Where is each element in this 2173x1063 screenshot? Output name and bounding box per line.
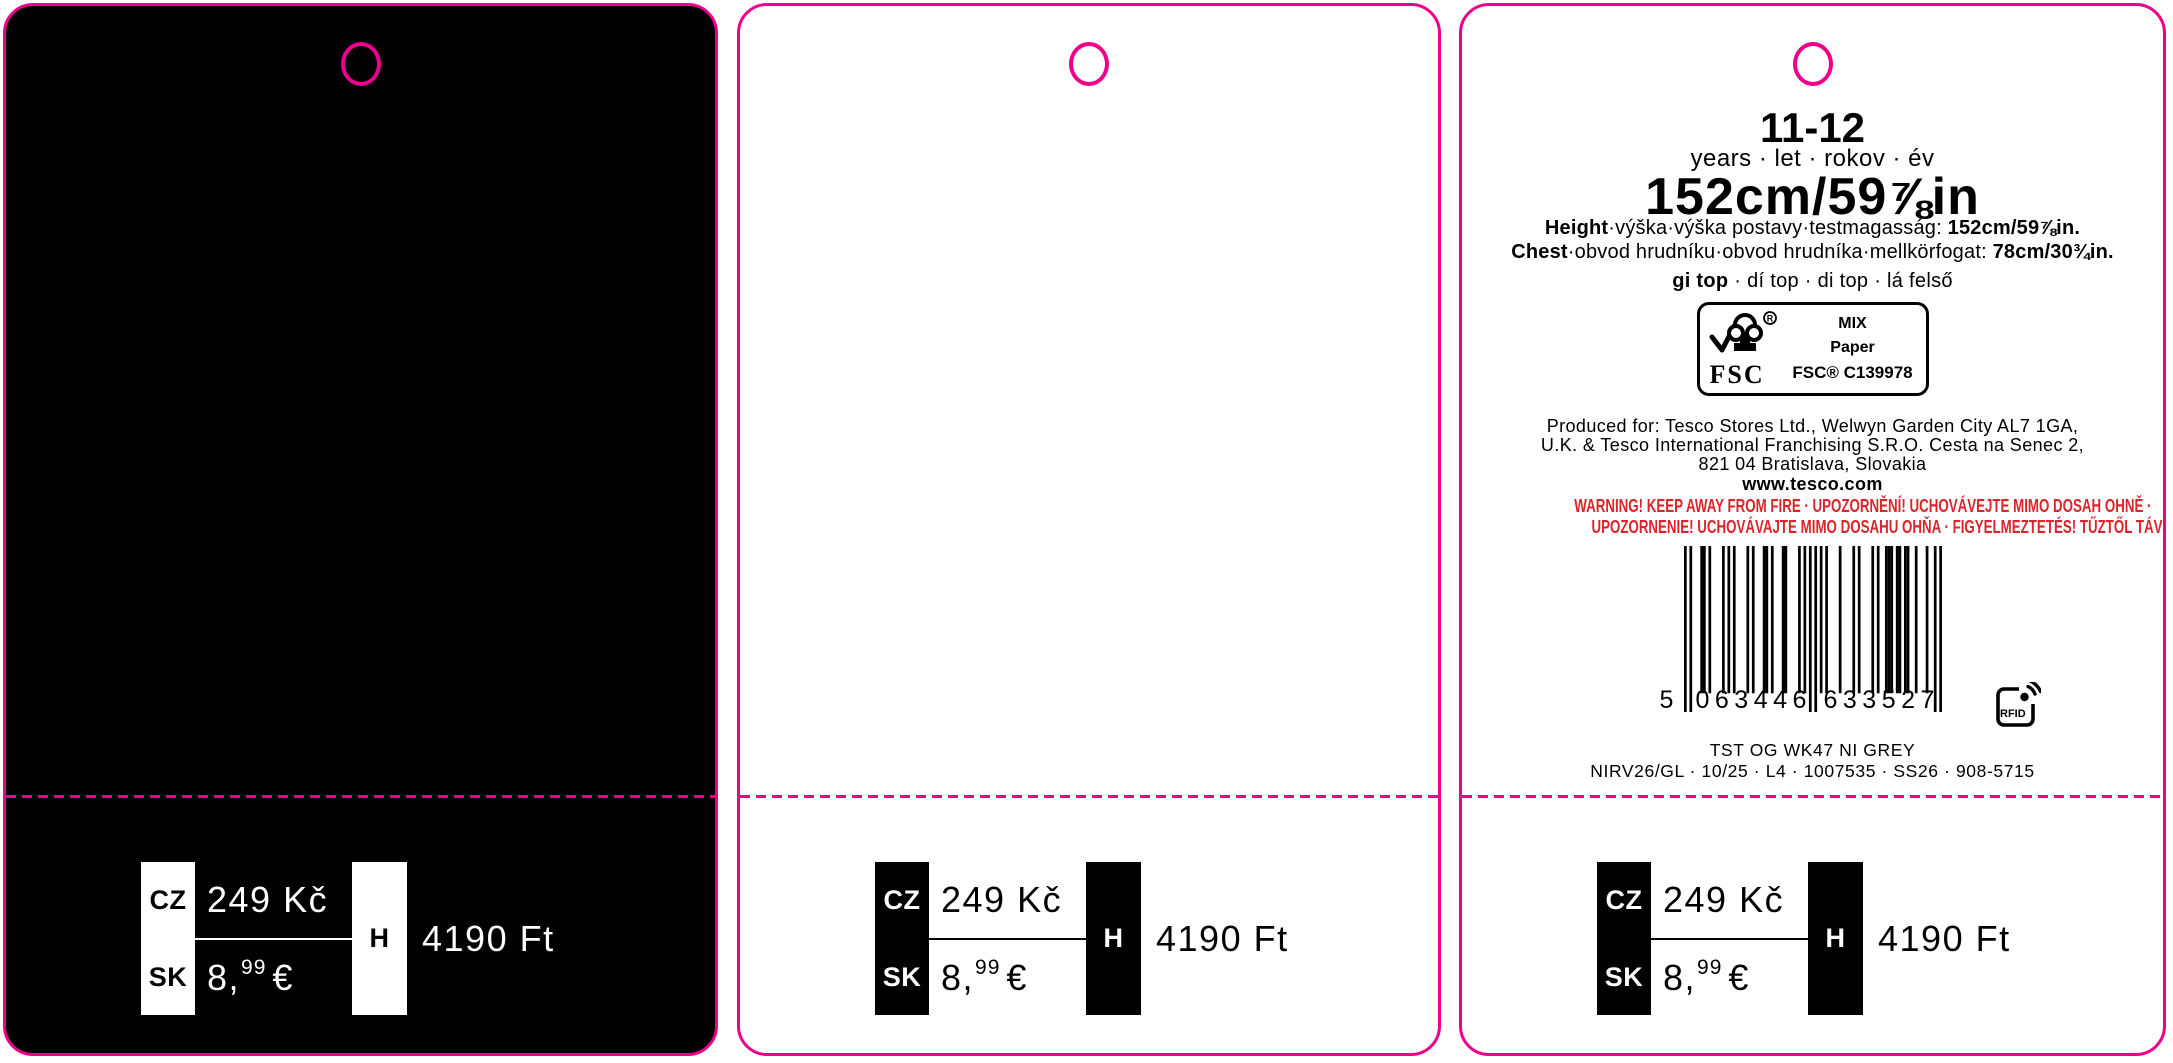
product-name-en: gi top <box>1672 270 1728 292</box>
tear-dash-line <box>740 795 1438 798</box>
producer-address: Produced for: Tesco Stores Ltd., Welwyn … <box>1462 417 2163 474</box>
price-block: CZ SK H 249 Kč 8,99€ 4190 Ft <box>141 862 571 1015</box>
fsc-mix-label: MIX <box>1838 315 1866 333</box>
price-eur: 8,99€ <box>207 940 294 1015</box>
price-block: CZ SK H 249 Kč 8,99€ 4190 Ft <box>1597 862 2027 1015</box>
h-label: H <box>1826 923 1846 954</box>
price-eur: 8,99€ <box>941 940 1028 1015</box>
fire-warning-line-1: WARNING! KEEP AWAY FROM FIRE · UPOZORNĚN… <box>1462 496 2163 516</box>
style-code-line: TST OG WK47 NI GREY <box>1462 741 2163 760</box>
eur-main: 8, <box>941 957 974 999</box>
producer-line-3: 821 04 Bratislava, Slovakia <box>1462 455 2163 474</box>
fsc-tree-icon: R <box>1708 309 1780 361</box>
h-label: H <box>1104 923 1124 954</box>
barcode-digits-left: 063446 <box>1696 686 1812 715</box>
producer-line-1: Produced for: Tesco Stores Ltd., Welwyn … <box>1462 417 2163 436</box>
barcode-digit-first: 5 <box>1660 686 1674 715</box>
price-czk: 249 Kč <box>1663 862 1784 938</box>
fsc-license-code: FSC® C139978 <box>1792 363 1912 383</box>
svg-text:R: R <box>1766 314 1773 324</box>
cz-country-box: CZ <box>1597 862 1651 938</box>
hu-country-box: H <box>1086 862 1141 1015</box>
eur-symbol: € <box>1006 957 1028 999</box>
eur-main: 8, <box>207 957 240 999</box>
price-huf: 4190 Ft <box>1878 862 2011 1015</box>
website: www.tesco.com <box>1462 475 2163 495</box>
eur-symbol: € <box>1728 957 1750 999</box>
hang-tag-black: CZ SK H 249 Kč 8,99€ 4190 Ft <box>3 3 718 1056</box>
price-huf: 4190 Ft <box>1156 862 1289 1015</box>
production-codes-line: NIRV26/GL · 10/25 · L4 · 1007535 · SS26 … <box>1462 762 2163 781</box>
hang-tag-white-blank: CZ SK H 249 Kč 8,99€ 4190 Ft <box>737 3 1441 1056</box>
h-label: H <box>370 923 390 954</box>
sk-label: SK <box>883 962 922 993</box>
svg-text:RFID: RFID <box>2000 708 2026 720</box>
hang-tag-info: 11-12 years · let · rokov · év 152cm/59⅞… <box>1459 3 2166 1056</box>
fsc-certification-box: R FSC MIX Paper FSC® C139978 <box>1697 302 1929 396</box>
chest-line: Chest·obvod hrudníku·obvod hrudníka·mell… <box>1462 241 2163 263</box>
cz-label: CZ <box>1606 885 1643 916</box>
height-label: Height <box>1545 217 1608 239</box>
cz-label: CZ <box>150 885 187 916</box>
sk-country-box: SK <box>875 940 929 1015</box>
sk-label: SK <box>1605 962 1644 993</box>
price-eur: 8,99€ <box>1663 940 1750 1015</box>
ean13-barcode: 5 063446 633527 <box>1684 546 1942 718</box>
chest-label: Chest <box>1511 241 1568 263</box>
punch-hole-icon <box>341 42 381 86</box>
height-translations: ·výška·výška postavy·testmagasság: <box>1608 217 1947 239</box>
fire-warning-line-2: UPOZORNENIE! UCHOVÁVAJTE MIMO DOSAHU OHŇ… <box>1462 517 2163 537</box>
producer-line-2: U.K. & Tesco International Franchising S… <box>1462 436 2163 455</box>
fsc-paper-label: Paper <box>1830 339 1874 357</box>
fsc-wordmark: FSC <box>1710 360 1765 390</box>
price-huf: 4190 Ft <box>422 862 555 1015</box>
cz-country-box: CZ <box>141 862 195 938</box>
tear-dash-line <box>6 795 715 798</box>
rfid-icon: RFID <box>1993 682 2041 728</box>
product-name-line: gi top · dí top · di top · lá felső <box>1462 270 2163 292</box>
sk-country-box: SK <box>141 940 195 1015</box>
hu-country-box: H <box>1808 862 1863 1015</box>
chest-translations: ·obvod hrudníku·obvod hrudníka·mellkörfo… <box>1568 241 1993 263</box>
barcode-digits-right: 633527 <box>1824 686 1940 715</box>
barcode-digits: 5 063446 633527 <box>1684 686 1942 716</box>
height-value: 152cm/59⅞in. <box>1948 217 2081 239</box>
hu-country-box: H <box>352 862 407 1015</box>
price-block: CZ SK H 249 Kč 8,99€ 4190 Ft <box>875 862 1305 1015</box>
chest-value: 78cm/30¾in. <box>1993 241 2114 263</box>
cz-country-box: CZ <box>875 862 929 938</box>
product-name-translations: · dí top · di top · lá felső <box>1728 270 1952 292</box>
eur-symbol: € <box>272 957 294 999</box>
eur-main: 8, <box>1663 957 1696 999</box>
price-czk: 249 Kč <box>941 862 1062 938</box>
fsc-logo: R FSC <box>1700 305 1786 393</box>
tear-dash-line <box>1462 795 2163 798</box>
punch-hole-icon <box>1069 42 1109 86</box>
fsc-labels: MIX Paper FSC® C139978 <box>1786 305 1926 393</box>
price-czk: 249 Kč <box>207 862 328 938</box>
cz-label: CZ <box>884 885 921 916</box>
punch-hole-icon <box>1793 42 1833 86</box>
sk-country-box: SK <box>1597 940 1651 1015</box>
sk-label: SK <box>149 962 188 993</box>
height-line: Height·výška·výška postavy·testmagasság:… <box>1462 217 2163 239</box>
